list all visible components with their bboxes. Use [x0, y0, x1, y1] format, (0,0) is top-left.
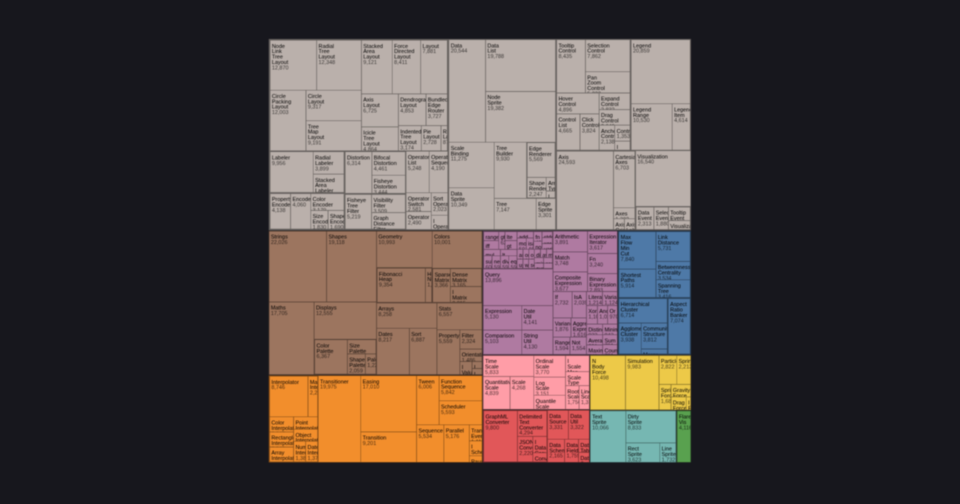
svg-text:Maths17,705: Maths17,705 — [271, 306, 288, 317]
svg-text:Literal1,214: Literal1,214 — [588, 295, 603, 306]
svg-text:Strings22,026: Strings22,026 — [271, 235, 288, 246]
svg-text:LegendRange10,530: LegendRange10,530 — [633, 107, 651, 124]
svg-text:Legend20,859: Legend20,859 — [633, 43, 651, 54]
svg-text:Match3,748: Match3,748 — [555, 255, 570, 266]
svg-text:Query13,896: Query13,896 — [485, 273, 502, 284]
svg-text:Stats6,557: Stats6,557 — [439, 307, 453, 318]
svg-text:Arrays8,258: Arrays8,258 — [378, 307, 394, 318]
svg-text:Scale4,268: Scale4,268 — [512, 380, 526, 391]
svg-text:Filter2,324: Filter2,324 — [462, 333, 476, 344]
svg-text:Colors10,001: Colors10,001 — [434, 235, 451, 246]
svg-text:Shapes19,118: Shapes19,118 — [328, 235, 347, 246]
svg-text:Spring2,213: Spring2,213 — [679, 359, 695, 370]
svg-text:Dates8,217: Dates8,217 — [378, 332, 392, 343]
svg-text:EdgeSprite3,301: EdgeSprite3,301 — [538, 202, 552, 219]
svg-text:Easing17,010: Easing17,010 — [363, 379, 380, 390]
svg-text:RadialTreeLayout12,348: RadialTreeLayout12,348 — [319, 44, 336, 66]
svg-text:TimeScale5,833: TimeScale5,833 — [485, 359, 499, 376]
